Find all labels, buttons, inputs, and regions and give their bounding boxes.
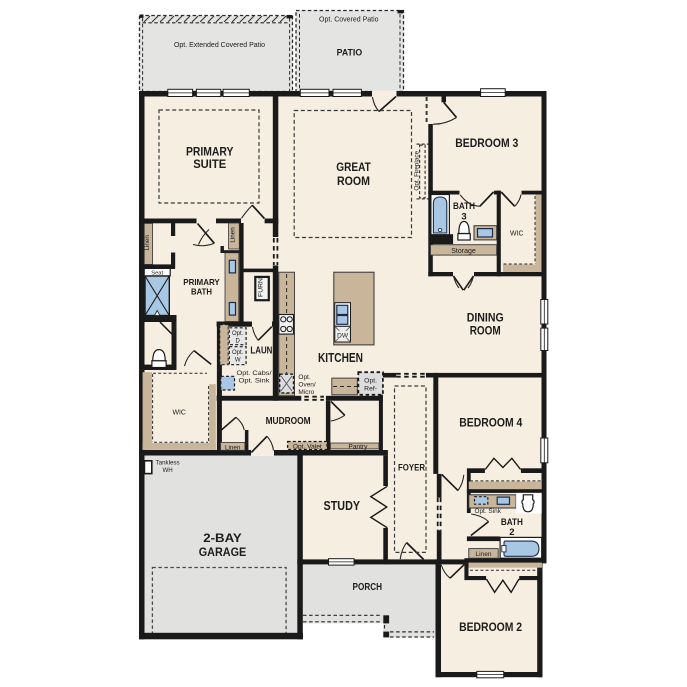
- svg-text:Opt. Extended Covered Patio: Opt. Extended Covered Patio: [174, 42, 265, 49]
- svg-text:Linen: Linen: [225, 444, 241, 451]
- svg-text:Opt. Fireplace: Opt. Fireplace: [413, 151, 420, 191]
- svg-text:BEDROOM 2: BEDROOM 2: [459, 620, 522, 634]
- svg-text:Linen: Linen: [144, 235, 151, 251]
- svg-text:BEDROOM 3: BEDROOM 3: [455, 136, 518, 150]
- svg-text:MUDROOM: MUDROOM: [266, 415, 311, 427]
- svg-text:Oven/: Oven/: [298, 381, 316, 388]
- svg-text:BATH: BATH: [453, 201, 475, 212]
- svg-text:Opt. Cabs/: Opt. Cabs/: [237, 370, 272, 377]
- svg-text:PATIO: PATIO: [337, 48, 363, 58]
- svg-text:PORCH: PORCH: [353, 582, 383, 593]
- svg-text:LAUN: LAUN: [250, 346, 272, 357]
- svg-text:ROOM: ROOM: [337, 174, 370, 188]
- svg-text:Opt.: Opt.: [232, 331, 244, 337]
- svg-text:FURN: FURN: [258, 278, 265, 297]
- svg-text:WH: WH: [162, 467, 172, 474]
- svg-text:SUITE: SUITE: [193, 157, 226, 171]
- svg-text:Opt. Covered Patio: Opt. Covered Patio: [319, 17, 379, 24]
- svg-text:Opt. Valet: Opt. Valet: [293, 443, 322, 450]
- svg-text:PRIMARY: PRIMARY: [183, 277, 220, 287]
- svg-text:Tankless: Tankless: [156, 459, 180, 466]
- svg-text:W: W: [235, 357, 241, 363]
- svg-text:2: 2: [509, 527, 514, 538]
- svg-text:Micro: Micro: [298, 389, 314, 396]
- svg-text:DW: DW: [337, 332, 349, 339]
- svg-text:Linen: Linen: [475, 551, 491, 558]
- svg-text:2-BAY: 2-BAY: [203, 531, 242, 545]
- svg-text:GARAGE: GARAGE: [199, 545, 247, 559]
- svg-text:BATH: BATH: [191, 286, 212, 296]
- svg-text:WIC: WIC: [172, 407, 186, 416]
- svg-text:WIC: WIC: [510, 230, 524, 237]
- svg-text:FOYER: FOYER: [398, 463, 426, 473]
- svg-text:ROOM: ROOM: [470, 323, 501, 337]
- svg-text:GREAT: GREAT: [336, 160, 371, 174]
- svg-text:Opt. Sink: Opt. Sink: [239, 378, 271, 385]
- svg-text:Opt. Sink: Opt. Sink: [474, 508, 501, 515]
- svg-text:Ref-: Ref-: [364, 386, 377, 393]
- svg-text:Linen: Linen: [229, 227, 236, 243]
- svg-text:Storage: Storage: [451, 246, 476, 255]
- svg-text:STUDY: STUDY: [324, 499, 361, 513]
- svg-text:Opt.: Opt.: [364, 378, 377, 385]
- svg-text:Pantry: Pantry: [348, 444, 368, 451]
- svg-text:D: D: [236, 339, 241, 345]
- svg-text:Opt.: Opt.: [232, 350, 244, 356]
- svg-text:3: 3: [461, 212, 466, 223]
- svg-text:Opt.: Opt.: [298, 374, 310, 381]
- svg-text:KITCHEN: KITCHEN: [318, 351, 363, 365]
- svg-text:BEDROOM 4: BEDROOM 4: [459, 415, 522, 429]
